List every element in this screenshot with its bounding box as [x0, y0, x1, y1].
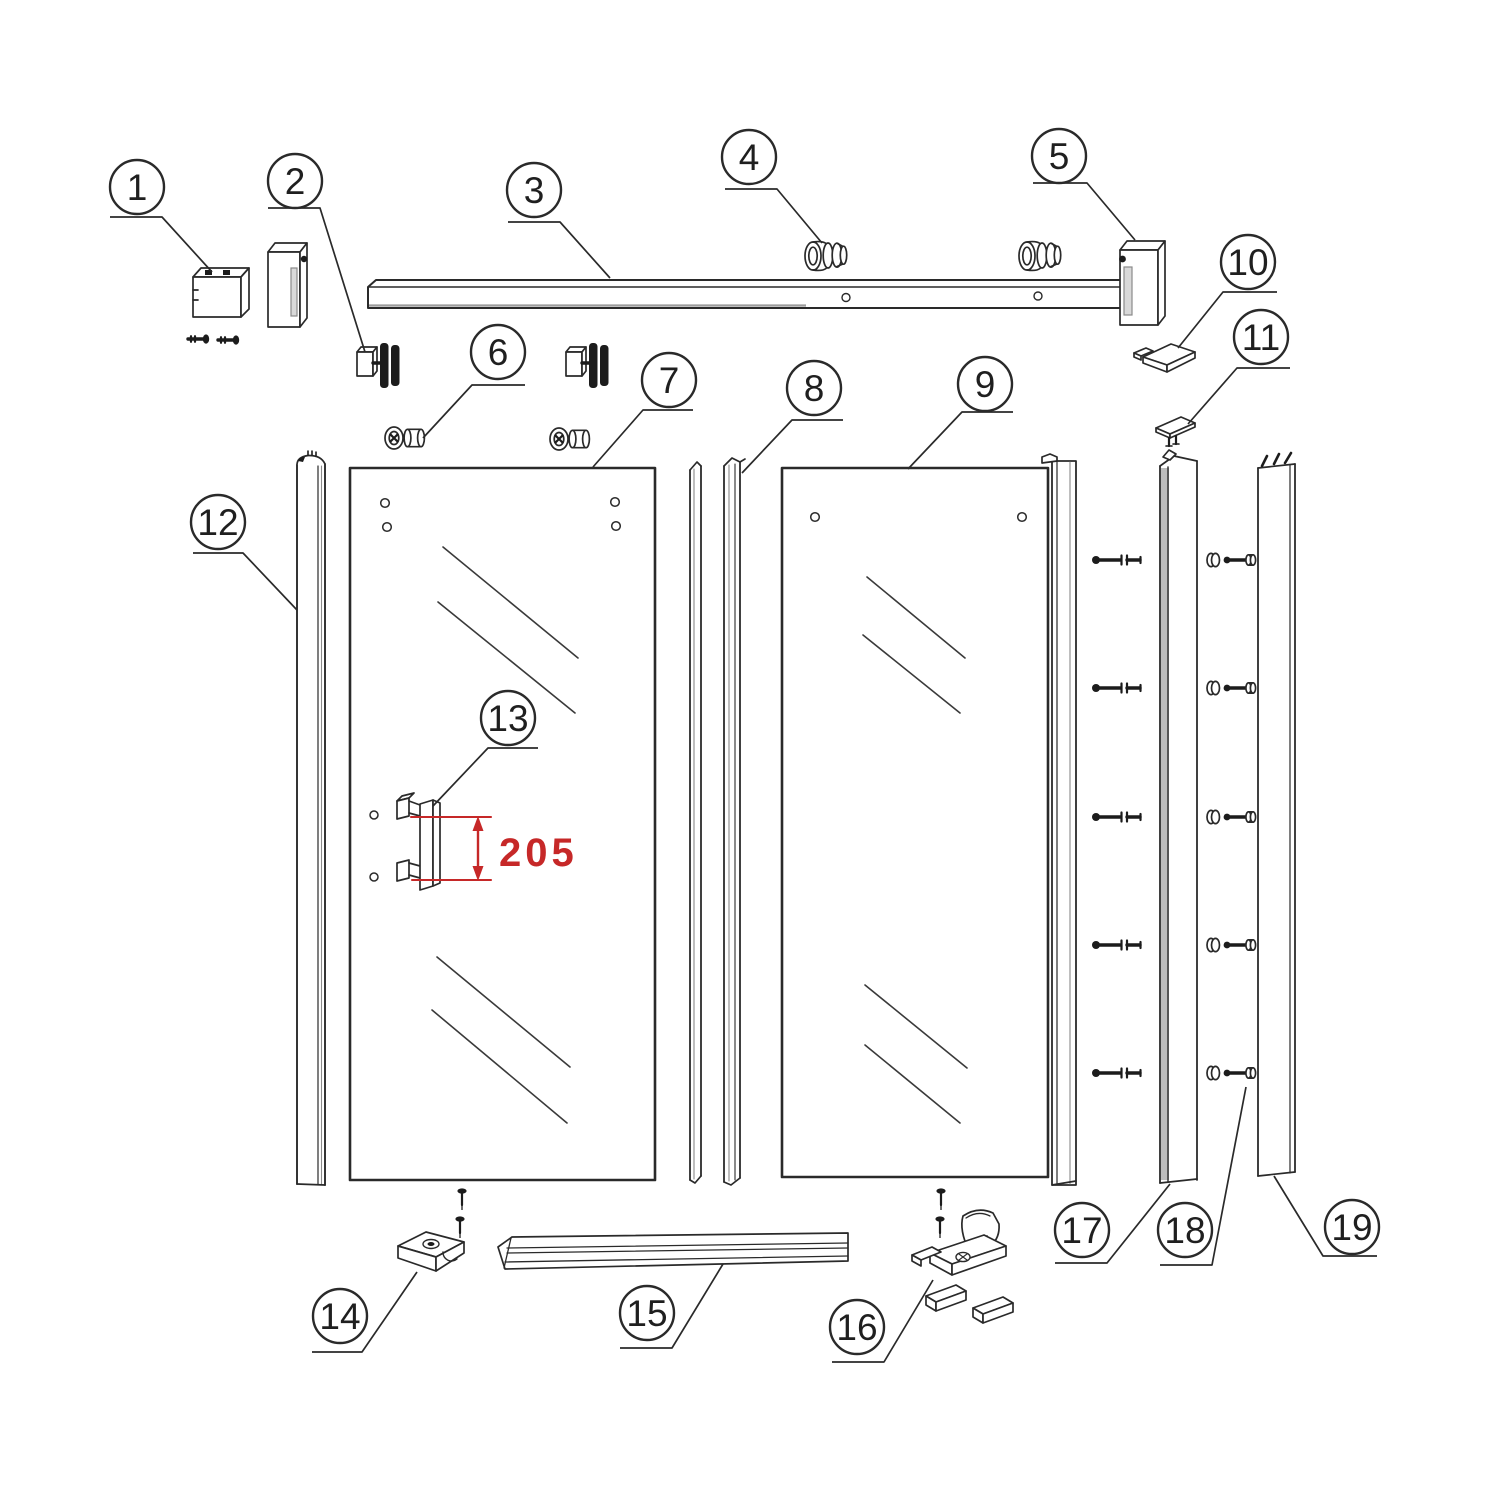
callout-label: 2: [285, 161, 306, 202]
callout-label: 3: [524, 170, 545, 211]
callout-5: 5: [1032, 129, 1135, 240]
callout-label: 6: [488, 332, 509, 373]
anchor-screw: [188, 334, 209, 343]
callout-label: 9: [975, 364, 996, 405]
callout-label: 14: [319, 1296, 360, 1337]
part-9-right-glass-panel: [782, 454, 1076, 1185]
callout-17: 17: [1055, 1184, 1170, 1263]
diagram-canvas: 1 2 3 4 5 6 7 8 9 10: [0, 0, 1500, 1500]
callout-6: 6: [423, 325, 525, 438]
callout-8: 8: [742, 361, 843, 473]
callout-19: 19: [1274, 1176, 1379, 1256]
part-12-wall-profile-left: [297, 451, 325, 1185]
callout-15: 15: [620, 1264, 723, 1348]
callout-label: 13: [487, 698, 528, 739]
exploded-parts-diagram: 1 2 3 4 5 6 7 8 9 10: [0, 0, 1500, 1500]
callout-11: 11: [1188, 310, 1290, 424]
part-11-small-clip: [1156, 417, 1195, 446]
callout-14: 14: [312, 1272, 417, 1352]
part-16-bottom-bracket: [912, 1188, 1013, 1323]
part-4-rail-roller: [805, 242, 1061, 271]
guide-screw: [455, 1216, 464, 1238]
callout-18: 18: [1158, 1087, 1246, 1265]
part-18-screw-washer-column: [1207, 553, 1256, 1079]
callout-label: 19: [1331, 1207, 1372, 1248]
part-1-wall-bracket: [188, 268, 249, 345]
part-19-wall-profile-right: [1258, 453, 1295, 1176]
callout-label: 16: [836, 1307, 877, 1348]
callout-label: 17: [1061, 1210, 1102, 1251]
guide-screw: [457, 1188, 466, 1210]
bracket-screw: [935, 1216, 944, 1238]
callout-label: 18: [1164, 1210, 1205, 1251]
callout-4: 4: [722, 130, 822, 243]
callout-label: 11: [1242, 317, 1280, 358]
end-cap-block-left: [268, 243, 307, 327]
part-7-left-glass-panel: [350, 468, 655, 1180]
part-3-top-rail: [368, 280, 1137, 308]
callout-label: 7: [659, 360, 680, 401]
callout-label: 1: [127, 167, 148, 208]
part-6-glass-roller: [385, 427, 589, 450]
callout-label: 12: [197, 502, 238, 543]
callout-label: 10: [1227, 242, 1268, 283]
part-5-end-cap-right: [1119, 241, 1165, 325]
part-10-top-clip: [1134, 344, 1195, 372]
callout-12: 12: [191, 495, 297, 610]
part-17-wall-profile: [1160, 450, 1197, 1183]
mounting-screws-column: [1092, 556, 1141, 1078]
bracket-screw: [936, 1188, 945, 1210]
callout-label: 8: [804, 368, 825, 409]
part-14-bottom-guide: [398, 1188, 467, 1271]
callout-3: 3: [507, 163, 610, 278]
callout-label: 4: [739, 137, 760, 178]
dimension-value: 205: [499, 831, 578, 875]
callout-9: 9: [908, 357, 1013, 469]
callout-label: 5: [1049, 136, 1070, 177]
callout-label: 15: [626, 1293, 667, 1334]
callout-16: 16: [830, 1280, 933, 1362]
part-8-seal-strips: [690, 458, 745, 1185]
callout-1: 1: [110, 160, 212, 272]
anchor-screw: [218, 335, 239, 344]
part-15-bottom-rail: [498, 1233, 848, 1269]
